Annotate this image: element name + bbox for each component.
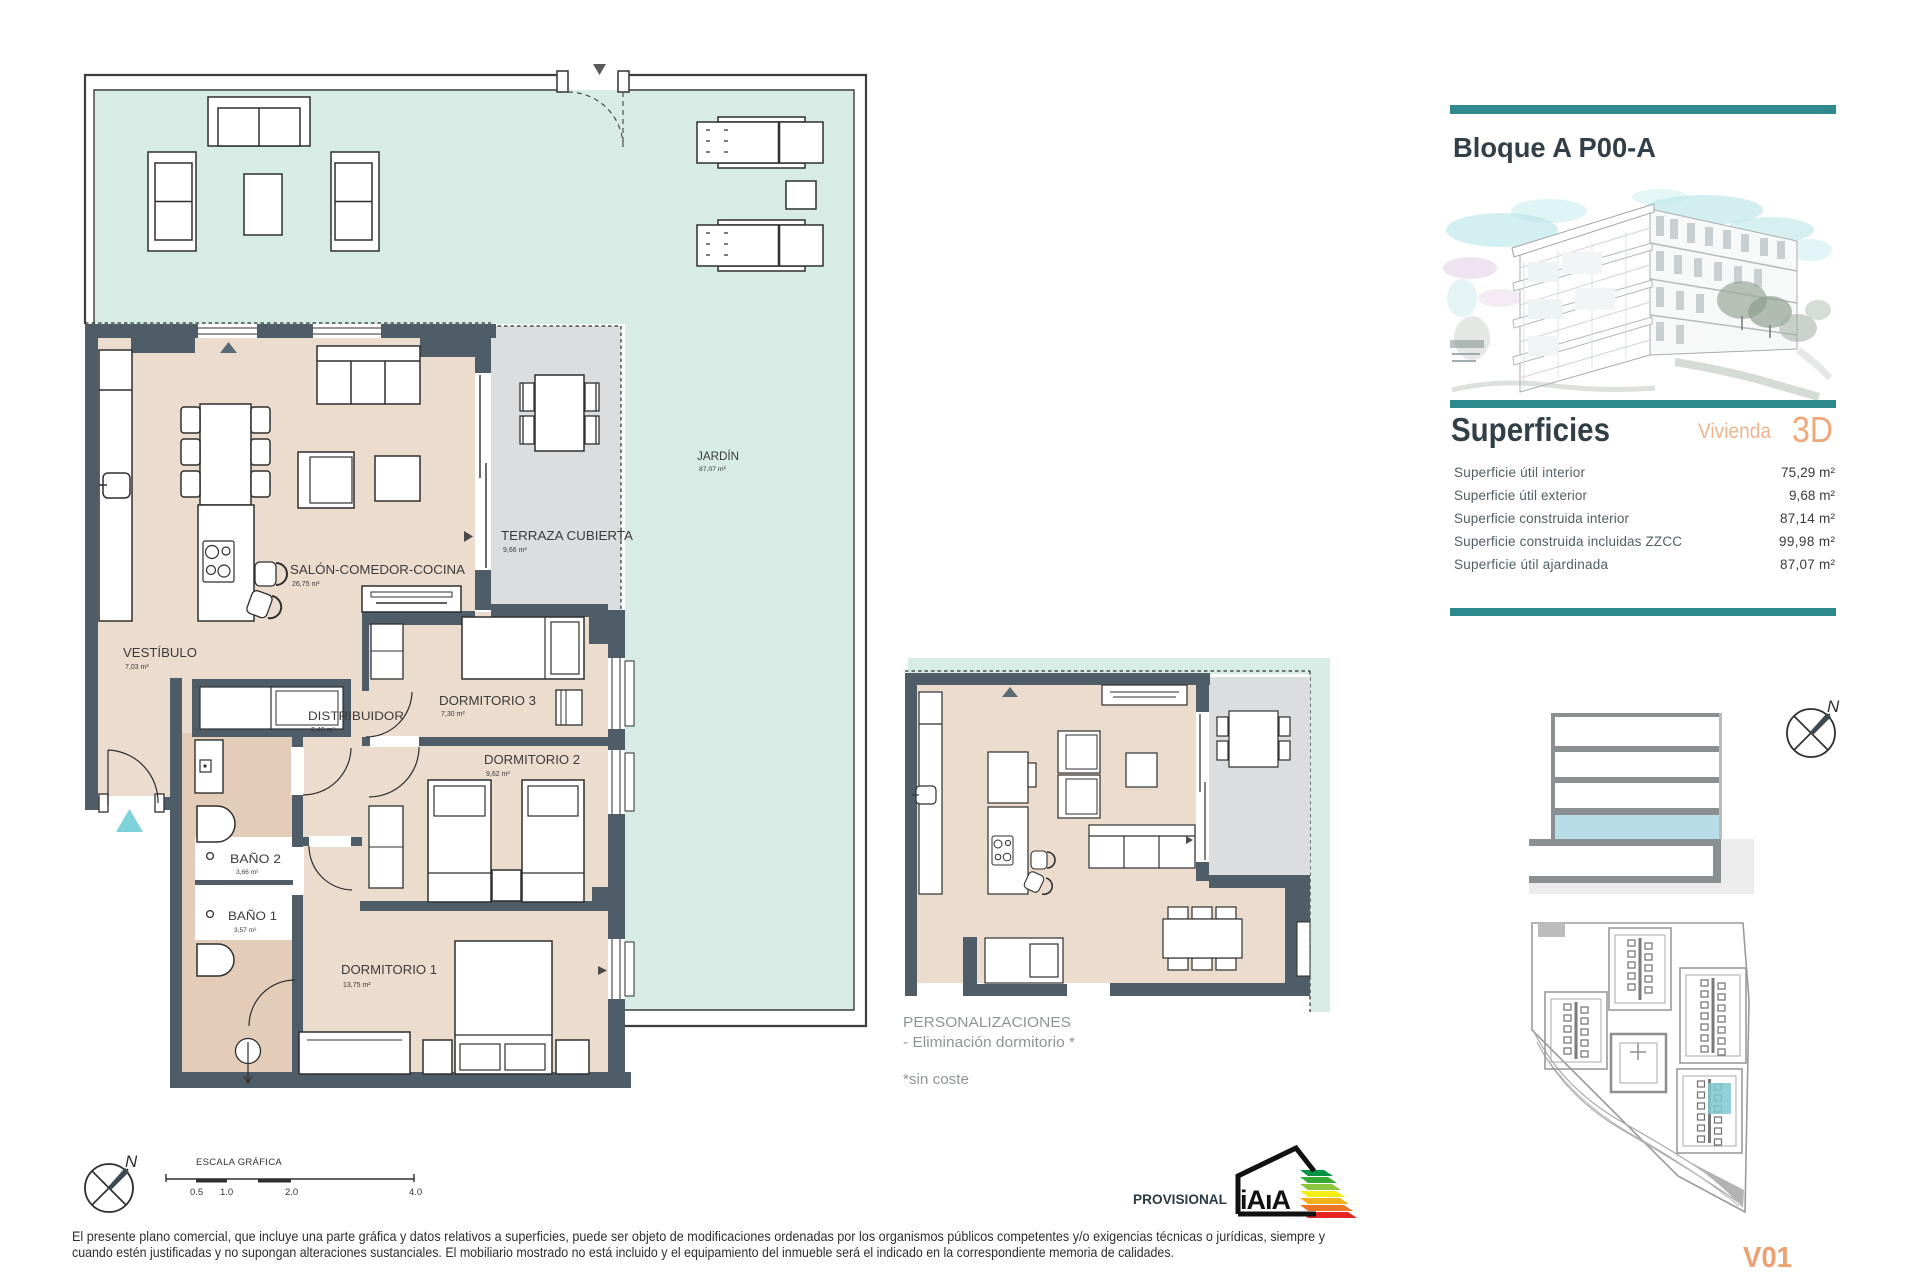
svg-text:3,66 m²: 3,66 m² (236, 869, 259, 876)
svg-text:Superficie útil exterior: Superficie útil exterior (1454, 488, 1588, 503)
svg-text:PERSONALIZACIONES: PERSONALIZACIONES (903, 1015, 1071, 1031)
svg-text:JARDÍN: JARDÍN (697, 448, 739, 463)
svg-text:7,03 m²: 7,03 m² (125, 664, 149, 671)
svg-text:99,98 m²: 99,98 m² (1779, 534, 1836, 549)
svg-text:4.0: 4.0 (409, 1187, 422, 1198)
svg-text:cuando estén justificadas y no: cuando estén justificadas y no supongan … (72, 1244, 1174, 1260)
svg-text:BAÑO 2: BAÑO 2 (230, 852, 281, 866)
svg-text:9,62 m²: 9,62 m² (486, 771, 510, 778)
svg-text:V01: V01 (1743, 1242, 1792, 1274)
svg-text:DORMITORIO 3: DORMITORIO 3 (439, 694, 536, 708)
svg-text:Superficie útil interior: Superficie útil interior (1454, 465, 1586, 480)
svg-text:iAıA: iAıA (1240, 1185, 1291, 1215)
svg-text:Superficies: Superficies (1451, 411, 1610, 448)
svg-text:- Eliminación dormitorio *: - Eliminación dormitorio * (903, 1035, 1075, 1051)
svg-text:2,49 m²: 2,49 m² (311, 727, 335, 734)
svg-text:DISTRIBUIDOR: DISTRIBUIDOR (308, 709, 404, 723)
svg-text:BAÑO 1: BAÑO 1 (228, 909, 277, 923)
svg-text:SALÓN-COMEDOR-COCINA: SALÓN-COMEDOR-COCINA (290, 562, 465, 577)
svg-text:75,29 m²: 75,29 m² (1781, 465, 1836, 480)
svg-text:13,75 m²: 13,75 m² (343, 982, 371, 989)
svg-text:1.0: 1.0 (220, 1187, 233, 1198)
svg-text:N: N (125, 1152, 138, 1171)
svg-text:Superficie construida incluida: Superficie construida incluidas ZZCC (1454, 534, 1682, 549)
svg-text:Vivienda: Vivienda (1698, 420, 1771, 443)
svg-text:ESCALA GRÁFICA: ESCALA GRÁFICA (196, 1157, 282, 1168)
svg-text:87,14 m²: 87,14 m² (1780, 511, 1836, 526)
svg-text:87,07 m²: 87,07 m² (699, 466, 727, 473)
svg-text:DORMITORIO 1: DORMITORIO 1 (341, 962, 437, 977)
svg-text:26,75 m²: 26,75 m² (292, 581, 320, 588)
svg-text:3D: 3D (1792, 409, 1833, 450)
svg-text:TERRAZA CUBIERTA: TERRAZA CUBIERTA (501, 528, 633, 543)
svg-text:*sin coste: *sin coste (903, 1072, 969, 1088)
svg-text:9,68 m²: 9,68 m² (1789, 488, 1836, 503)
svg-text:Superficie construida interior: Superficie construida interior (1454, 511, 1630, 526)
svg-text:Bloque A P00-A: Bloque A P00-A (1453, 132, 1656, 163)
svg-text:VESTÍBULO: VESTÍBULO (123, 645, 197, 660)
svg-text:0.5: 0.5 (190, 1187, 203, 1198)
svg-text:Superficie útil ajardinada: Superficie útil ajardinada (1454, 557, 1608, 572)
svg-text:El presente plano comercial, q: El presente plano comercial, que incluye… (72, 1228, 1325, 1244)
svg-text:7,30 m²: 7,30 m² (441, 711, 465, 718)
svg-text:2.0: 2.0 (285, 1187, 298, 1198)
svg-text:DORMITORIO 2: DORMITORIO 2 (484, 753, 580, 767)
svg-text:9,66 m²: 9,66 m² (503, 547, 527, 554)
svg-text:N: N (1827, 697, 1840, 716)
svg-text:87,07 m²: 87,07 m² (1780, 557, 1836, 572)
svg-text:3,57 m²: 3,57 m² (234, 927, 257, 934)
svg-text:PROVISIONAL: PROVISIONAL (1133, 1192, 1227, 1207)
